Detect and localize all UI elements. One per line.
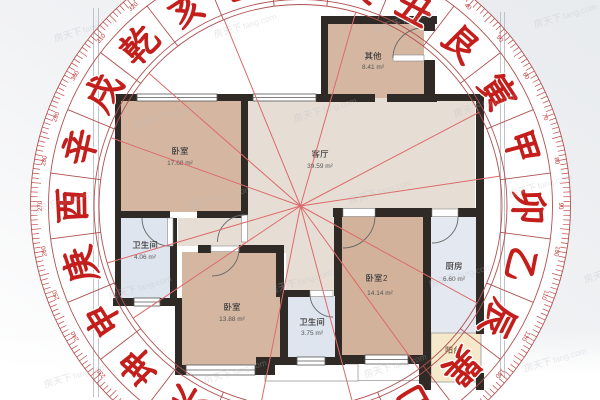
svg-text:2: 2 <box>383 274 388 283</box>
svg-text:8.41 m²: 8.41 m² <box>362 64 385 71</box>
svg-text:90: 90 <box>557 203 564 210</box>
svg-text:13.88 m²: 13.88 m² <box>219 316 245 323</box>
svg-text:3.75 m²: 3.75 m² <box>301 330 324 337</box>
svg-text:4.06 m²: 4.06 m² <box>134 254 157 261</box>
svg-text:14.14 m²: 14.14 m² <box>367 290 393 297</box>
svg-text:270: 270 <box>37 200 44 211</box>
